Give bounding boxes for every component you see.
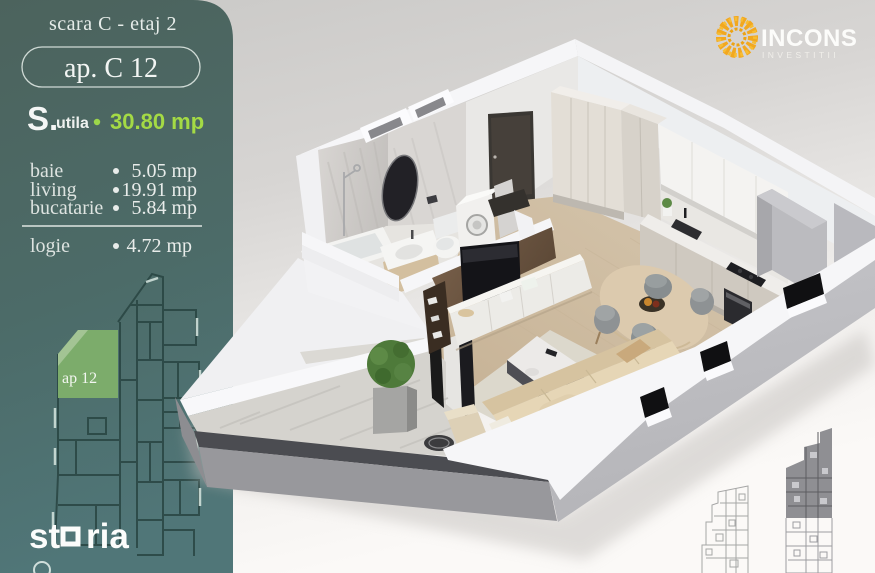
svg-text:30.80 mp: 30.80 mp [110,109,204,134]
svg-text:S.: S. [27,100,58,137]
svg-text:ria: ria [86,517,129,556]
svg-text:utila: utila [56,115,89,132]
svg-text:ap 12: ap 12 [62,370,97,387]
svg-text:logie: logie [30,235,70,257]
svg-text:st: st [29,517,60,556]
svg-text:ap. C 12: ap. C 12 [64,53,158,84]
svg-text:INCONS: INCONS [761,25,857,52]
svg-text:4.72 mp: 4.72 mp [126,235,192,257]
svg-text:bucatarie: bucatarie [30,197,103,219]
svg-text:scara C - etaj 2: scara C - etaj 2 [49,13,177,35]
svg-text:INVESTITII: INVESTITII [762,50,839,60]
svg-text:5.84 mp: 5.84 mp [131,197,197,219]
